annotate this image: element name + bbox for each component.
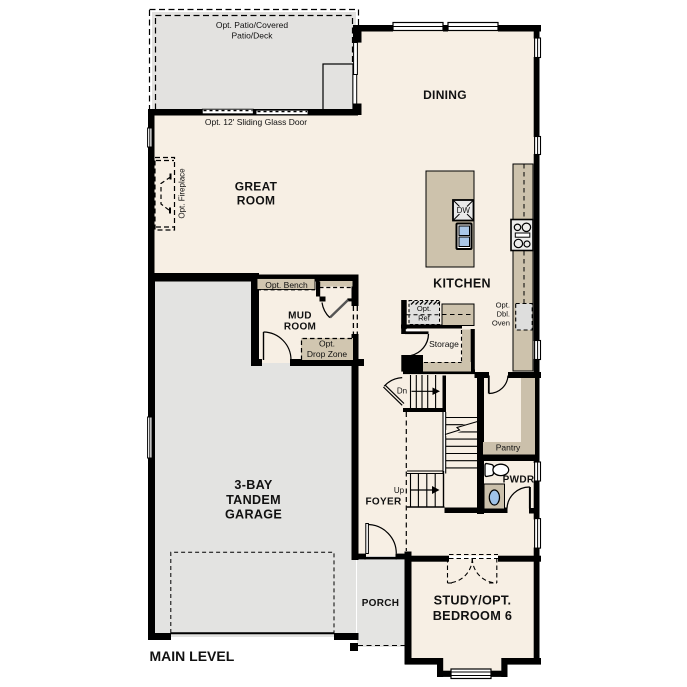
svg-text:FOYER: FOYER — [366, 497, 402, 508]
svg-text:Dn: Dn — [397, 387, 407, 396]
svg-text:Opt. Bench: Opt. Bench — [265, 280, 308, 290]
svg-text:Dbl.: Dbl. — [496, 310, 510, 319]
svg-text:ROOM: ROOM — [237, 194, 276, 208]
svg-text:Opt.: Opt. — [496, 301, 510, 310]
svg-text:STUDY/OPT.: STUDY/OPT. — [434, 594, 512, 608]
svg-text:Opt.: Opt. — [319, 339, 335, 349]
svg-text:Opt. Patio/Covered: Opt. Patio/Covered — [216, 20, 289, 30]
svg-text:GREAT: GREAT — [235, 180, 278, 194]
svg-text:Ref: Ref — [418, 314, 431, 323]
svg-text:Pantry: Pantry — [496, 443, 521, 453]
svg-text:DW: DW — [457, 206, 471, 215]
svg-text:PORCH: PORCH — [362, 598, 400, 609]
svg-text:KITCHEN: KITCHEN — [433, 277, 491, 291]
svg-text:BEDROOM 6: BEDROOM 6 — [433, 609, 513, 623]
svg-text:MAIN LEVEL: MAIN LEVEL — [150, 648, 235, 664]
svg-text:ROOM: ROOM — [284, 322, 316, 333]
svg-text:DINING: DINING — [423, 88, 467, 102]
svg-text:Opt. Fireplace: Opt. Fireplace — [178, 168, 187, 219]
svg-text:3-BAY: 3-BAY — [234, 478, 272, 492]
svg-text:Opt.: Opt. — [417, 304, 431, 313]
svg-text:Patio/Deck: Patio/Deck — [231, 31, 273, 41]
svg-text:Oven: Oven — [492, 319, 510, 328]
svg-text:TANDEM: TANDEM — [226, 493, 281, 507]
svg-text:PWDR: PWDR — [503, 475, 535, 486]
svg-text:Opt. 12' Sliding Glass Door: Opt. 12' Sliding Glass Door — [205, 117, 307, 127]
svg-text:GARAGE: GARAGE — [225, 508, 282, 522]
svg-text:MUD: MUD — [288, 311, 312, 322]
svg-text:Drop Zone: Drop Zone — [307, 349, 347, 359]
svg-text:Up: Up — [394, 486, 405, 495]
svg-text:Storage: Storage — [429, 339, 459, 349]
